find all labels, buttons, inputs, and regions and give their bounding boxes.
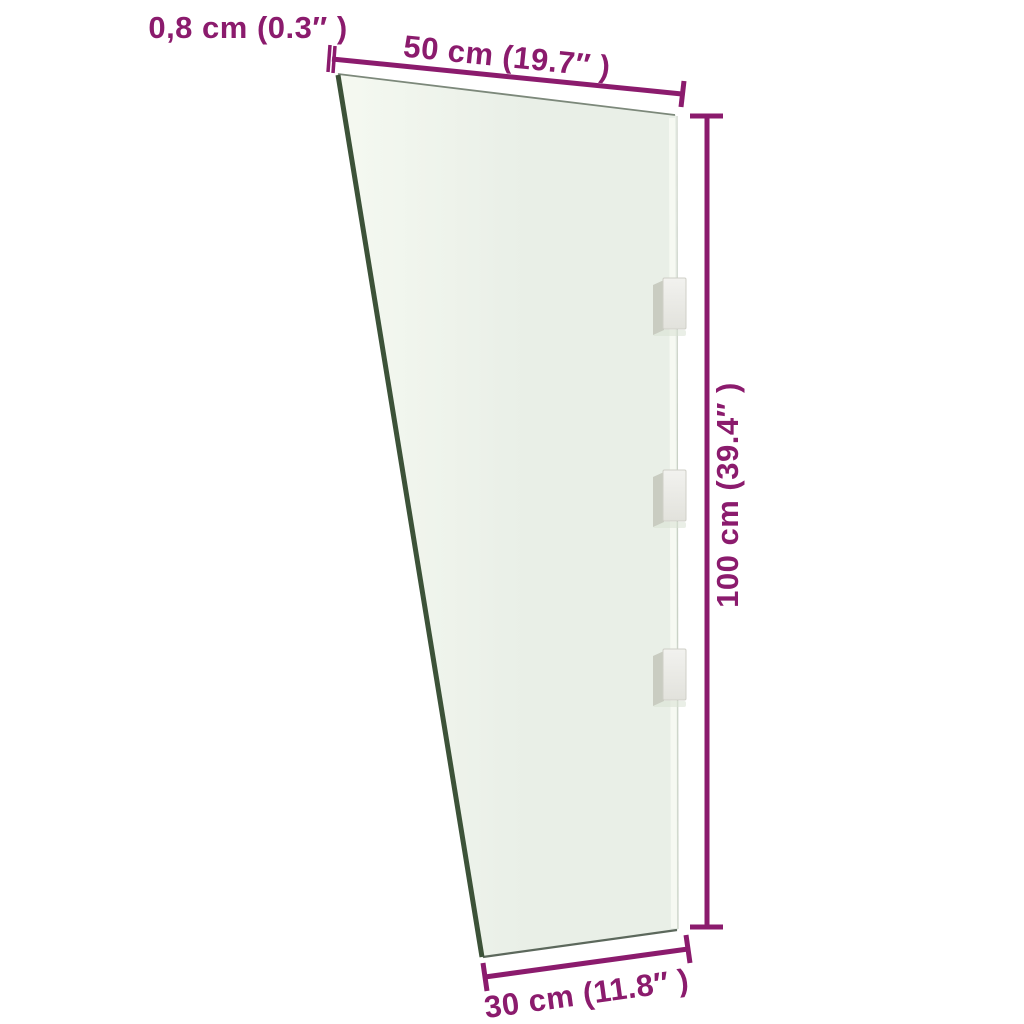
bracket-side-face — [653, 280, 664, 335]
bracket-side-face — [653, 651, 664, 706]
thickness-tick-outer — [328, 45, 330, 72]
glass-surface — [337, 73, 678, 958]
height-label: 100 cm (39.4″ ) — [710, 382, 745, 608]
dimension-thickness: 0,8 cm (0.3″ ) — [148, 10, 347, 73]
bracket-front-face — [663, 278, 686, 329]
glass-panel — [337, 73, 678, 958]
mounting-bracket-top — [653, 278, 686, 336]
bracket-front-face — [663, 649, 686, 700]
bracket-side-face — [653, 472, 664, 527]
top-width-end-tick — [681, 81, 684, 107]
mounting-bracket-middle — [653, 470, 686, 528]
product-dimension-diagram: 0,8 cm (0.3″ ) 50 cm (19.7″ ) 100 cm (39… — [0, 0, 1024, 1024]
bracket-front-face — [663, 470, 686, 521]
diagram-svg: 0,8 cm (0.3″ ) 50 cm (19.7″ ) 100 cm (39… — [0, 0, 1024, 1024]
thickness-label: 0,8 cm (0.3″ ) — [148, 10, 347, 45]
bottom-width-tick-right — [686, 935, 690, 963]
mounting-bracket-bottom — [653, 649, 686, 707]
dimension-height: 100 cm (39.4″ ) — [690, 116, 745, 927]
bottom-width-tick-left — [483, 963, 487, 991]
